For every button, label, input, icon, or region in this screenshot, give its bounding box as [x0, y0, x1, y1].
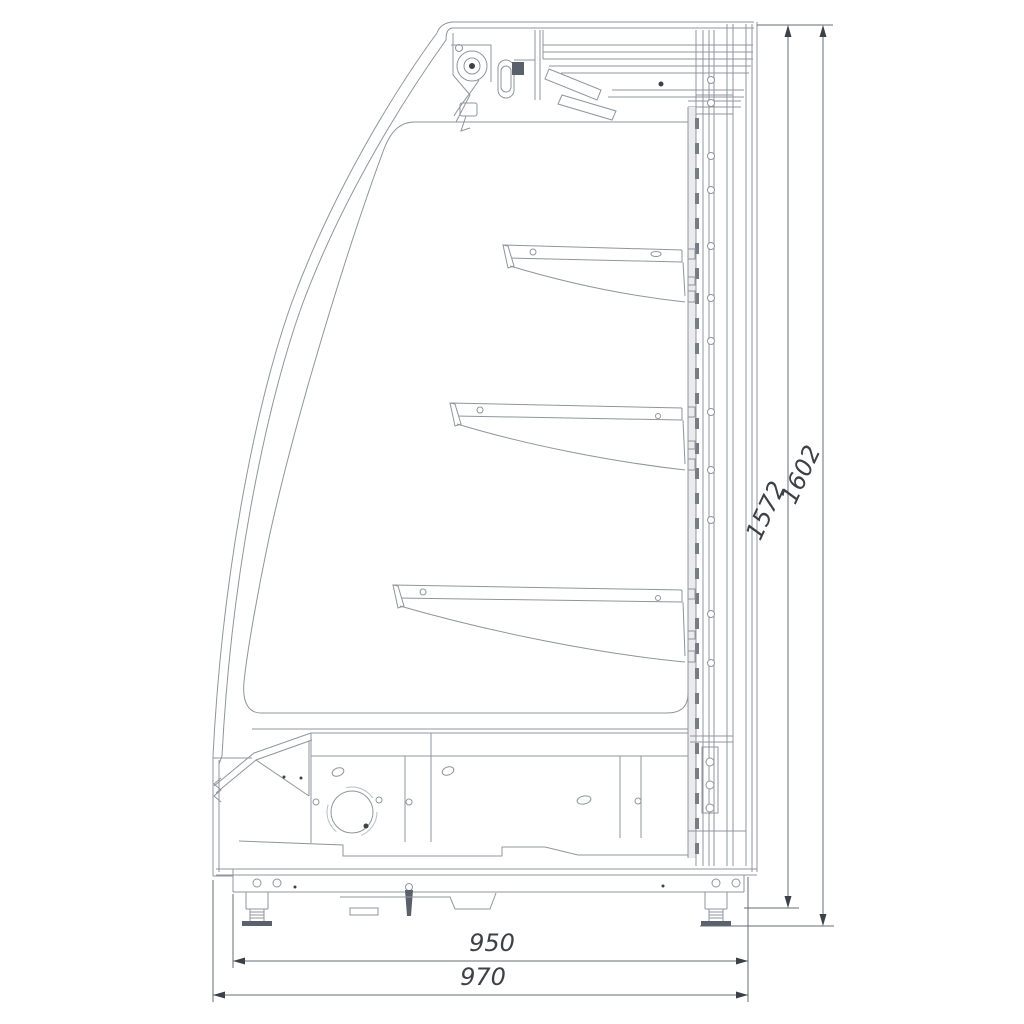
back-wall [688, 22, 757, 872]
drawing-page: 1572 1602 950 970 [0, 0, 1024, 1024]
shelf-middle [450, 403, 695, 470]
base-frame [216, 869, 757, 916]
top-air-duct [543, 30, 753, 120]
dimension-label-depth-base: 950 [469, 929, 515, 957]
shelf-lower [393, 585, 695, 662]
dimension-height-overall: 1602 [775, 25, 826, 926]
dimension-depth-overall: 970 [213, 963, 748, 999]
air-deflector-plate [545, 69, 601, 100]
leveling-foot-rear [701, 892, 731, 926]
front-bumper [213, 733, 312, 876]
curved-front-glass [213, 33, 446, 764]
air-deflector-plate-2 [558, 95, 616, 120]
dimension-label-depth-overall: 970 [460, 963, 506, 991]
dimension-label-height-overall: 1602 [775, 441, 826, 508]
display-case-section-drawing: 1572 1602 950 970 [0, 0, 1024, 1024]
shelf-upper [503, 245, 695, 302]
inner-liner [244, 122, 688, 729]
drain-assembly [340, 884, 496, 917]
ballast-block [512, 62, 524, 75]
dimension-height-body: 1572 [740, 25, 791, 908]
leveling-foot-front [242, 892, 272, 926]
dimension-depth-base: 950 [233, 929, 748, 965]
extension-lines [213, 25, 834, 1002]
rear-bracket [702, 747, 718, 813]
